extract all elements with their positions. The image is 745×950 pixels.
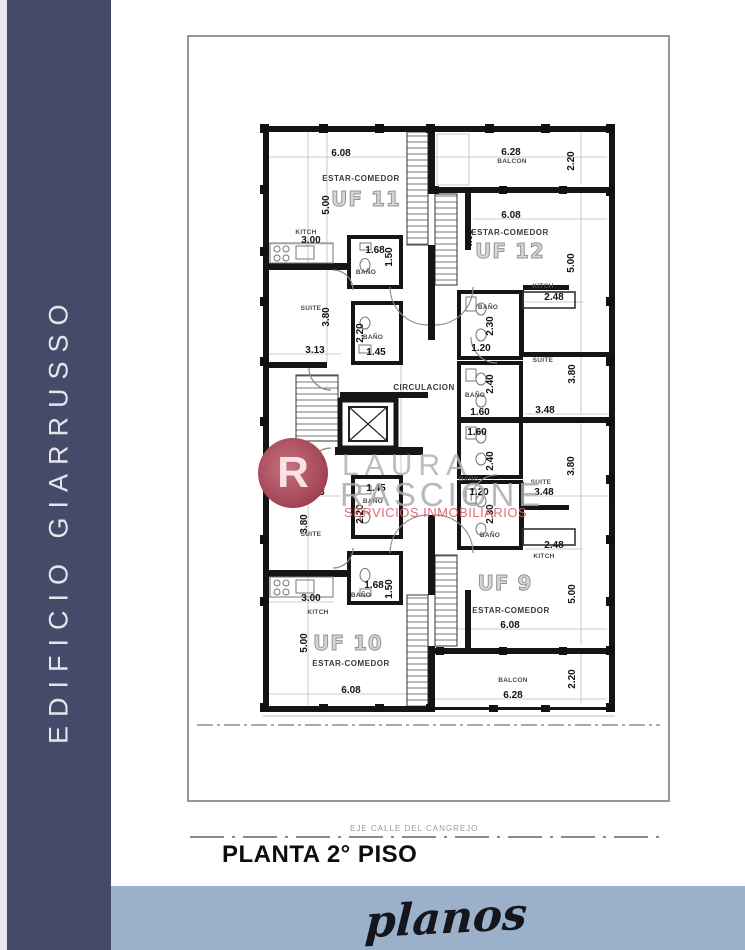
plan-label: ESTAR-COMEDOR — [312, 660, 389, 668]
plan-label: ESTAR-COMEDOR — [472, 607, 549, 615]
plan-label: 2.40 — [486, 374, 496, 393]
plan-label: 6.08 — [341, 686, 360, 696]
plan-label: 1.20 — [471, 344, 490, 354]
watermark-tagline: SERVICIOS INMOBILIARIOS — [344, 505, 527, 520]
plan-label: 1.45 — [366, 348, 385, 358]
plan-label: 6.28 — [501, 148, 520, 158]
building-name: EDIFICIO GIARRUSSO — [7, 170, 111, 870]
plan-label: 5.00 — [300, 633, 310, 652]
plan-label: 6.28 — [503, 691, 522, 701]
plan-label: 6.08 — [500, 621, 519, 631]
plan-labels-layer: 6.08ESTAR-COMEDORUF 115.00KITCH3.001.681… — [189, 37, 668, 800]
agency-logo: R — [258, 438, 328, 508]
unit-label: UF 11 — [331, 189, 401, 209]
plan-label: 3.48 — [535, 406, 554, 416]
plan-label: 3.00 — [301, 594, 320, 604]
unit-label: UF 10 — [313, 633, 383, 653]
plan-label: 2.20 — [567, 151, 577, 170]
planos-label: planos — [364, 888, 529, 948]
plan-label: 2.30 — [486, 316, 496, 335]
floor-plan-sheet: 6.08ESTAR-COMEDORUF 115.00KITCH3.001.681… — [187, 35, 670, 802]
plan-label: SUITE — [301, 306, 322, 313]
plan-label: 1.68 — [364, 581, 383, 591]
plan-label: 3.80 — [568, 364, 578, 383]
plan-label: 6.08 — [331, 149, 350, 159]
plan-label: KITCH — [307, 610, 328, 617]
plan-label: 2.20 — [568, 669, 578, 688]
plan-label: SUITE — [533, 358, 554, 365]
plan-label: 1.50 — [385, 247, 395, 266]
plan-label: 1.60 — [470, 408, 489, 418]
plan-label: 1.50 — [385, 579, 395, 598]
plan-label: ESTAR-COMEDOR — [322, 175, 399, 183]
plan-label: 3.80 — [322, 307, 332, 326]
plan-label: CIRCULACION — [393, 384, 455, 392]
plan-label: ESTAR-COMEDOR — [471, 229, 548, 237]
agency-logo-letter: R — [277, 448, 309, 498]
plan-label: 2.48 — [544, 293, 563, 303]
plan-label: 1.60 — [467, 428, 486, 438]
plan-label: BALCON — [497, 159, 527, 166]
plan-label: 3.13 — [305, 346, 324, 356]
plan-label: BALCON — [498, 678, 528, 685]
plan-label: BAÑO — [465, 393, 485, 400]
plan-label: 6.08 — [501, 211, 520, 221]
unit-label: UF 9 — [478, 573, 533, 593]
plan-title: PLANTA 2° PISO — [222, 841, 417, 869]
plan-label: KITCH — [533, 554, 554, 561]
planos-banner: planos — [111, 886, 745, 950]
plan-label: 3.80 — [300, 514, 310, 533]
plan-label: BAÑO — [356, 270, 376, 277]
unit-label: UF 12 — [475, 241, 545, 261]
plan-label: KITCH — [532, 284, 553, 291]
plan-label: BAÑO — [480, 533, 500, 540]
plan-label: 3.80 — [567, 456, 577, 475]
plan-label: 1.68 — [365, 246, 384, 256]
plan-label: 4.00 — [465, 229, 475, 248]
plan-label: 2.40 — [486, 451, 496, 470]
plan-label: BAÑO — [478, 305, 498, 312]
street-axis-label: EJE CALLE DEL CANGREJO — [350, 824, 478, 833]
plan-label: 2.48 — [544, 541, 563, 551]
plan-label: 5.00 — [567, 253, 577, 272]
street-axis-line — [190, 836, 663, 838]
plan-label: BAÑO — [351, 593, 371, 600]
plan-label: 5.00 — [322, 195, 332, 214]
page-edge-strip — [0, 0, 7, 950]
plan-label: 5.00 — [568, 584, 578, 603]
plan-label: BAÑO — [363, 335, 383, 342]
plan-label: 3.00 — [301, 236, 320, 246]
